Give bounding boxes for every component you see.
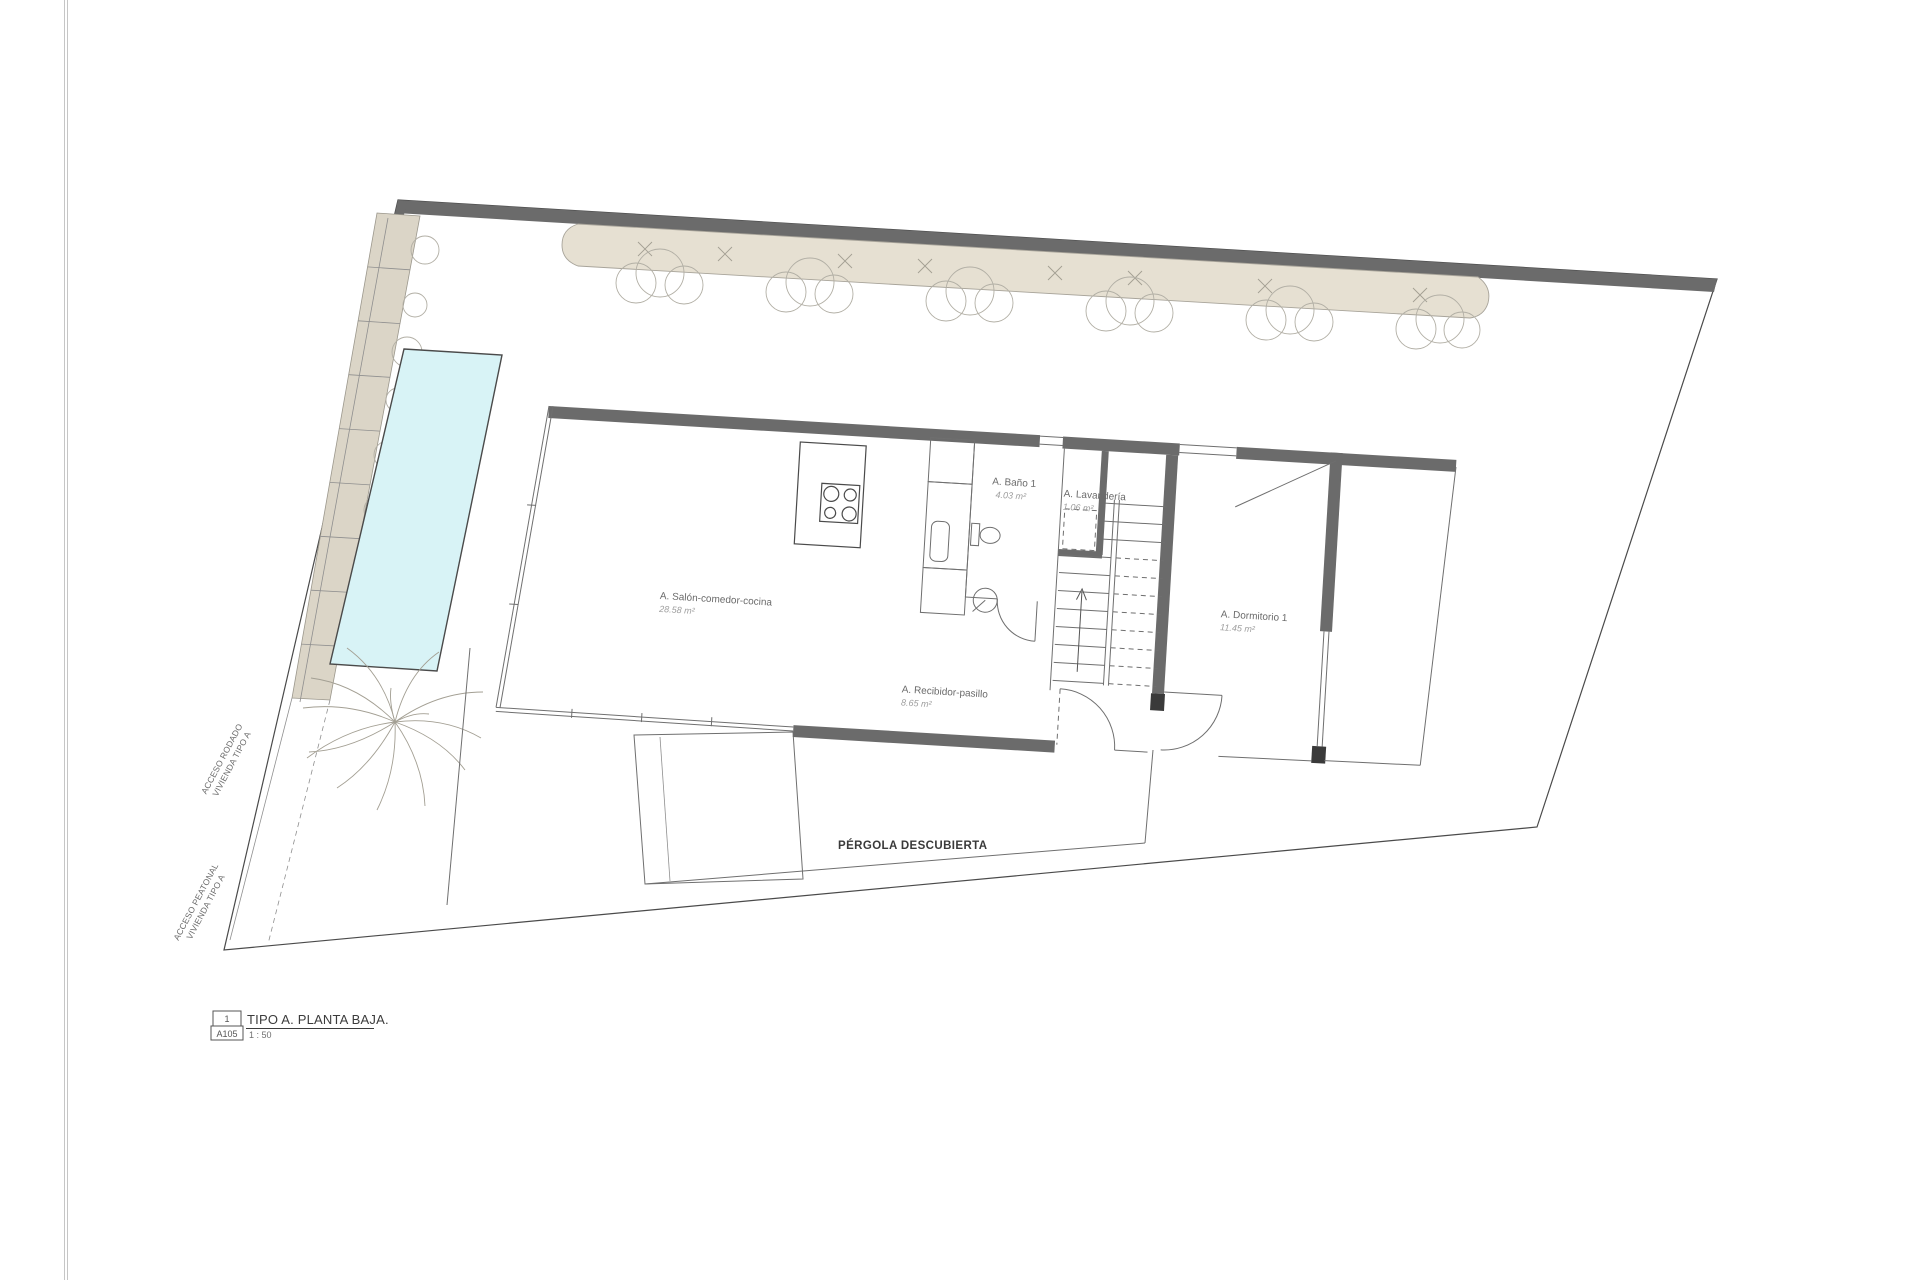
view-title-block: 1 A105 TIPO A. PLANTA BAJA. 1 : 50	[211, 1011, 389, 1040]
kitchen	[791, 430, 975, 615]
stove-icon	[820, 483, 860, 523]
room-area-bano: 4.03 m²	[995, 490, 1027, 502]
view-number: 1	[224, 1014, 229, 1024]
room-area-dormitorio: 11.45 m²	[1220, 622, 1256, 634]
acceso-rodado-annotation: ACCESO RODADO VIVIENDA TIPO A	[199, 722, 254, 801]
sheet-frame-line	[65, 0, 68, 1280]
glass-facade	[496, 404, 812, 731]
view-title: TIPO A. PLANTA BAJA.	[247, 1012, 389, 1027]
washer-icon	[1062, 509, 1096, 551]
pergola-terrace	[447, 648, 1153, 905]
house-tipo-a: A. Salón-comedor-cocina 28.58 m² A. Baño…	[496, 404, 1457, 770]
bathroom-fixtures	[967, 523, 1002, 613]
walls	[531, 406, 1457, 770]
room-labels: A. Salón-comedor-cocina 28.58 m² A. Baño…	[653, 457, 1295, 730]
room-area-lavanderia: 1.06 m²	[1063, 502, 1095, 514]
pergola-label: PÉRGOLA DESCUBIERTA	[838, 839, 987, 852]
room-area-salon: 28.58 m²	[658, 604, 696, 616]
doors	[989, 599, 1227, 756]
room-area-recibidor: 8.65 m²	[901, 697, 933, 709]
acceso-peatonal-annotation: ACCESO PEATONAL VIVIENDA TIPO A	[171, 861, 230, 947]
stair-direction-arrow	[1072, 589, 1087, 672]
floor-plan-sheet: A. Salón-comedor-cocina 28.58 m² A. Baño…	[0, 0, 1920, 1280]
washbasin-icon	[973, 588, 998, 613]
view-scale: 1 : 50	[249, 1030, 272, 1040]
sheet-code: A105	[216, 1029, 237, 1039]
stairs	[1052, 497, 1167, 689]
toilet-icon	[970, 523, 1000, 547]
floor-plan-drawing: A. Salón-comedor-cocina 28.58 m² A. Baño…	[0, 0, 1920, 1280]
room-label-bano: A. Baño 1	[992, 476, 1037, 490]
room-label-lavanderia: A. Lavandería	[1063, 489, 1126, 504]
kitchen-sink-icon	[929, 521, 949, 562]
